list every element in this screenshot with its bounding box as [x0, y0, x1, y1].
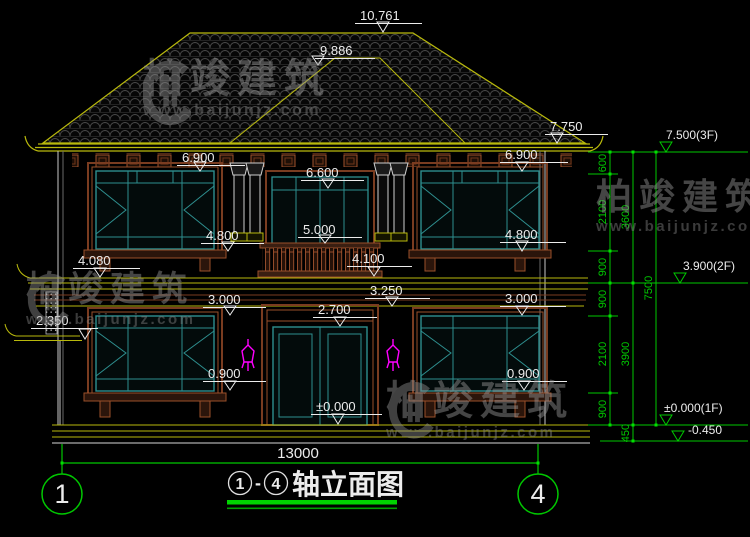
level-balcony-floor: 4.100 [352, 251, 385, 266]
level-3f: 7.500(3F) [666, 128, 718, 142]
level-upper-ridge: 9.886 [320, 43, 353, 58]
dim-3600: 3600 [620, 205, 632, 229]
level-entry-zero: ±0.000 [316, 399, 356, 414]
level-peak: 10.761 [360, 8, 400, 23]
dim-900: 900 [597, 400, 609, 418]
dim-600: 600 [597, 154, 609, 172]
elevation-drawing: 600 2100 900 900 2100 900 3600 3900 450 … [0, 0, 750, 537]
base-plinth [52, 425, 590, 443]
dimension-chains [588, 142, 748, 441]
level-win1-sill-right: 0.900 [507, 366, 540, 381]
dim-7500: 7500 [643, 276, 655, 300]
level-win2-top-left: 6.900 [182, 150, 215, 165]
level-belt-left: 4.080 [78, 253, 111, 268]
level-2f: 3.900(2F) [683, 259, 735, 273]
grid-bubble-1: 1 [54, 479, 69, 509]
level-eave: 7.750 [550, 119, 583, 134]
wall-lamp-left [242, 339, 254, 371]
title-dash: - [255, 473, 261, 493]
drawing-title: 1 - 4 轴立面图 [227, 468, 404, 509]
dim-2100: 2100 [597, 200, 609, 224]
window-1f-right [409, 308, 551, 417]
wall-lamp-right [387, 339, 399, 371]
level-canopy-bottom: 3.250 [370, 283, 403, 298]
dim-2100: 2100 [597, 342, 609, 366]
title-name: 轴立面图 [292, 468, 404, 500]
side-annex [5, 292, 82, 425]
dim-overall-width: 13000 [277, 445, 319, 462]
hip-roof [43, 33, 585, 143]
window-2f-right [409, 163, 551, 271]
level-balcony-door-top: 6.600 [306, 165, 339, 180]
dim-450: 450 [620, 424, 632, 442]
level-side-awning: 2.350 [36, 313, 69, 328]
dim-900: 900 [597, 290, 609, 308]
level-win2-sill-right: 4.800 [505, 227, 538, 242]
level-win1-top-left: 3.000 [208, 292, 241, 307]
chain-labels: 600 2100 900 900 2100 900 3600 3900 450 … [597, 154, 655, 442]
dim-3900: 3900 [620, 342, 632, 366]
grid-bubble-4: 4 [530, 479, 545, 509]
level-ground: -0.450 [688, 423, 722, 437]
dim-900: 900 [597, 258, 609, 276]
level-1f: ±0.000(1F) [664, 401, 723, 415]
level-door-top: 2.700 [318, 302, 351, 317]
level-win1-top-right: 3.000 [505, 291, 538, 306]
cad-canvas: 600 2100 900 900 2100 900 3600 3900 450 … [0, 0, 750, 537]
window-1f-left [84, 308, 226, 417]
level-win1-sill-left: 0.900 [208, 366, 241, 381]
level-win2-sill-left: 4.800 [206, 228, 239, 243]
level-win2-top-right: 6.900 [505, 147, 538, 162]
title-axis-to: 4 [272, 476, 281, 493]
title-axis-from: 1 [236, 476, 245, 493]
